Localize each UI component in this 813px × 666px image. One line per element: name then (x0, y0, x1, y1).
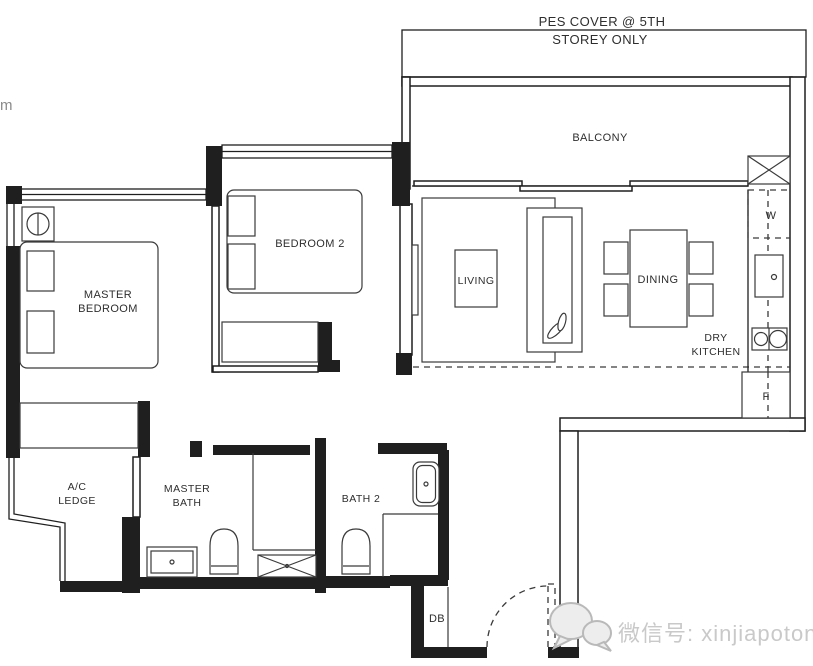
chair (604, 242, 628, 274)
pillow (27, 311, 54, 353)
master-bedroom-left-wall (6, 246, 20, 458)
master-wardrobe (20, 403, 138, 448)
balcony-label: BALCONY (572, 132, 628, 144)
pes-cover-label-2: STOREY ONLY (552, 32, 647, 47)
bath-divider-wall (315, 438, 326, 593)
pes-cover-label-1: PES COVER @ 5TH (539, 14, 666, 29)
living-left-wall (400, 204, 412, 355)
dry-kitchen-label-1: DRY (704, 332, 727, 344)
floor-plan: m PES COVER @ 5TH STOREY ONLY BALCONY MA… (0, 0, 813, 666)
bedroom2-furniture (222, 190, 362, 362)
master-bath-fittings (147, 453, 316, 577)
dry-kitchen-label-2: KITCHEN (692, 346, 741, 358)
balcony-top-wall (402, 77, 792, 86)
watermark-text: 微信号: xinjiapotong (618, 621, 813, 646)
bath2-label: BATH 2 (342, 493, 380, 505)
ac-ledge-label-1: A/C (68, 481, 87, 493)
toilet (342, 529, 370, 574)
living-furniture (412, 198, 582, 362)
fridge-label: F (762, 391, 769, 403)
entrance (448, 584, 555, 647)
edge-text-fragment: m (0, 97, 13, 114)
master-bedroom-side-window (7, 203, 14, 248)
bedroom2-label: BEDROOM 2 (275, 238, 345, 250)
db-label: DB (429, 613, 445, 625)
master-bath-label-2: BATH (173, 497, 202, 509)
bedroom2-right-column (392, 142, 410, 206)
acledge-bath-wall (133, 457, 140, 517)
door-swing-arc (487, 586, 548, 647)
kitchen-sink (755, 255, 783, 297)
dining-label: DINING (638, 274, 679, 286)
bedroom2-bottom-wall (213, 366, 318, 372)
living-label: LIVING (458, 275, 495, 287)
watermark: 微信号: xinjiapotong (550, 603, 813, 651)
pillow (228, 244, 255, 289)
kitchen-bottom-wall (560, 418, 805, 431)
balcony-sliding-door (412, 181, 748, 191)
ac-ledge-boundary (9, 457, 65, 581)
master-bedroom-label-1: MASTER (84, 289, 132, 301)
floor-plan-page: m PES COVER @ 5TH STOREY ONLY BALCONY MA… (0, 0, 813, 666)
master-bath-label-1: MASTER (164, 483, 210, 495)
chair (689, 284, 713, 316)
pillow (228, 196, 255, 236)
bedroom-divider-column (206, 146, 222, 206)
pillow (27, 251, 54, 291)
chair (604, 284, 628, 316)
master-bedroom-label-2: BEDROOM (78, 303, 138, 315)
tv-panel (412, 245, 418, 315)
toilet (210, 529, 238, 574)
bedroom2-left-wall (212, 206, 219, 372)
master-bedroom-furniture (20, 207, 158, 448)
washer-label: W (766, 210, 777, 222)
bath2-right-wall (438, 450, 449, 580)
bedroom2-wardrobe (222, 322, 318, 362)
bath2-fittings (342, 462, 439, 577)
chair (689, 242, 713, 274)
balcony-ac-unit (748, 156, 790, 184)
ac-ledge-label-2: LEDGE (58, 495, 96, 507)
right-outer-wall (790, 77, 805, 431)
